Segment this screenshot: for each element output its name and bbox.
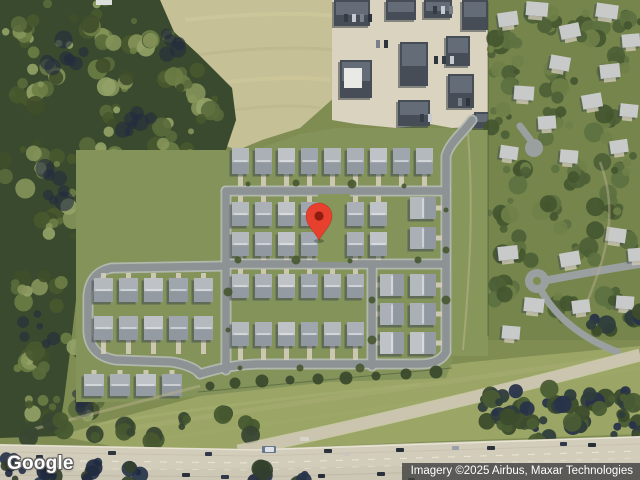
roof-slope: [94, 329, 113, 340]
overlay-tree: [86, 459, 103, 476]
forest-tree: [17, 78, 28, 89]
street-tree: [238, 366, 243, 371]
street-tree: [292, 256, 301, 265]
driveway-pad: [516, 99, 528, 104]
neighborhood-tree: [520, 167, 531, 178]
roof-slope: [301, 335, 318, 346]
forest-tree: [190, 63, 205, 78]
roof-slope: [119, 291, 138, 302]
roof-ridge: [96, 289, 112, 290]
roof-slope: [347, 215, 364, 226]
forest-tree: [25, 400, 33, 408]
forest-tree: [17, 284, 27, 294]
roof-ridge: [257, 213, 271, 214]
roof-slope: [94, 291, 113, 302]
forest-tree: [188, 128, 194, 134]
neighborhood-tree: [586, 221, 604, 239]
cul-de-sac-island: [533, 277, 541, 285]
forest-shadow: [43, 190, 54, 201]
parked-car: [428, 114, 432, 122]
building-roof: [464, 2, 486, 17]
roof-slope: [232, 162, 249, 174]
roof-ridge: [349, 243, 363, 244]
truck-trailer: [265, 447, 274, 452]
forest-shadow: [55, 31, 73, 49]
roof-ridge: [257, 243, 271, 244]
neighborhood-tree: [496, 102, 511, 117]
neighborhood-tree: [550, 212, 559, 221]
neighborhood-tree: [611, 167, 618, 174]
white-structure: [96, 0, 112, 5]
roof-slope: [232, 335, 249, 346]
roof-slope: [370, 245, 387, 256]
roof-slope: [347, 245, 364, 256]
forest-shadow: [161, 29, 172, 40]
roof-ridge: [121, 289, 137, 290]
roof-slope: [255, 287, 272, 298]
neighborhood-tree: [540, 195, 557, 212]
vehicle: [221, 475, 229, 479]
band-tree: [492, 409, 498, 415]
pin-hole: [314, 211, 323, 220]
forest-tree: [43, 227, 55, 239]
neighborhood-tree: [582, 9, 590, 17]
roof-ridge: [146, 289, 162, 290]
roof-ridge: [391, 334, 392, 353]
building-roof: [400, 102, 428, 115]
forest-tree: [143, 33, 158, 48]
parked-car: [433, 6, 437, 14]
roof-slope: [194, 329, 213, 340]
roof-ridge: [280, 285, 294, 286]
vehicle: [324, 449, 332, 453]
forest-shadow: [145, 112, 157, 124]
forest-shadow: [37, 323, 44, 330]
roof-ridge: [171, 327, 187, 328]
forest-tree: [26, 96, 45, 115]
roof-slope: [301, 287, 318, 298]
neighborhood-tree: [509, 176, 528, 195]
forest-tree: [104, 127, 114, 137]
roof-ridge: [86, 384, 103, 385]
roof-ridge: [96, 327, 112, 328]
roof-ridge: [349, 285, 363, 286]
roof-ridge: [303, 333, 317, 334]
street-tree: [443, 247, 450, 254]
roof-slope: [232, 287, 249, 298]
forest-tree: [157, 138, 169, 150]
roof-ridge: [422, 305, 423, 324]
neighborhood-tree: [622, 168, 630, 176]
forest-tree: [2, 28, 10, 36]
neighborhood-tree: [503, 166, 511, 174]
roof-ridge: [234, 213, 248, 214]
band-tree: [563, 413, 582, 432]
house-row: [376, 274, 404, 357]
neighborhood-tree: [624, 21, 633, 30]
house-roof: [616, 295, 635, 309]
roof-slope: [324, 335, 341, 346]
roof-slope: [347, 335, 364, 346]
roof-slope: [393, 303, 404, 325]
overlay-tree: [124, 461, 136, 473]
street-tree: [348, 259, 353, 264]
forest-tree: [55, 276, 68, 289]
parked-car: [352, 14, 356, 22]
neighborhood-tree: [556, 106, 567, 117]
roof-ridge: [280, 160, 294, 161]
building-roof: [336, 2, 368, 15]
roadside-tree: [182, 415, 191, 424]
roof-ridge: [164, 384, 181, 385]
hedge-tree: [230, 378, 241, 389]
roof-slope: [393, 162, 410, 174]
roof-slope: [144, 291, 163, 302]
vehicle: [588, 443, 596, 447]
forest-shadow: [79, 47, 89, 57]
forest-tree: [11, 16, 27, 32]
roof-ridge: [196, 289, 212, 290]
house-roof: [627, 247, 640, 262]
neighborhood-tree: [501, 206, 519, 224]
house-roof: [514, 85, 535, 100]
street-tree: [235, 257, 242, 264]
forest-tree: [27, 64, 38, 75]
house-roof: [538, 115, 557, 129]
forest-shadow: [159, 46, 174, 61]
neighborhood-tree: [514, 69, 520, 75]
forest-tree: [28, 46, 40, 58]
roof-slope: [278, 245, 295, 256]
roadside-tree: [52, 412, 68, 428]
vehicle: [343, 452, 350, 456]
attribution-bar: Imagery ©2025 Airbus, Maxar Technologies: [402, 463, 640, 480]
forest-shadow: [40, 55, 55, 70]
vehicle: [560, 442, 567, 446]
parked-car: [376, 40, 380, 48]
forest-tree: [54, 161, 60, 167]
vehicle: [487, 446, 495, 450]
roof-ridge: [326, 285, 340, 286]
neighborhood-tree: [537, 18, 552, 33]
vehicle: [396, 448, 404, 452]
house-roof: [523, 297, 544, 313]
roof-slope: [393, 274, 404, 296]
band-tree: [509, 384, 523, 398]
band-tree: [527, 418, 539, 430]
parked-car: [442, 56, 446, 64]
parked-car: [420, 114, 424, 122]
roof-ridge: [121, 327, 137, 328]
roof-slope: [255, 335, 272, 346]
roof-slope: [347, 162, 364, 174]
forest-tree: [70, 233, 77, 240]
forest-tree: [27, 14, 40, 27]
neighborhood-tree: [507, 198, 513, 204]
street-tree: [224, 288, 233, 297]
neighborhood-tree: [511, 55, 523, 67]
forest-tree: [164, 67, 183, 86]
street-tree: [444, 208, 449, 213]
neighborhood-tree: [553, 221, 567, 235]
forest-shadow: [19, 332, 29, 342]
subdivision: [76, 120, 488, 402]
house-roof: [525, 1, 548, 17]
forest-tree: [20, 146, 27, 153]
band-tree: [540, 380, 558, 398]
parked-car: [384, 40, 388, 48]
band-tree: [613, 423, 621, 431]
street-tree: [246, 182, 251, 187]
house-roof: [571, 299, 590, 314]
band-tree: [495, 398, 503, 406]
roof-ridge: [391, 305, 392, 324]
roof-slope: [424, 197, 436, 219]
forest-tree: [105, 35, 121, 51]
roof-ridge: [349, 333, 363, 334]
forest-tree: [15, 179, 35, 199]
roof-slope: [278, 335, 295, 346]
hedge-tree: [430, 366, 443, 379]
forest-tree: [38, 361, 50, 373]
roof-slope: [393, 332, 404, 354]
roof-ridge: [391, 276, 392, 295]
forest-shadow: [34, 310, 42, 318]
street-tree: [369, 297, 376, 304]
vehicle: [300, 437, 309, 441]
vehicle: [182, 473, 190, 477]
roof-slope: [232, 215, 249, 226]
roof-ridge: [326, 160, 340, 161]
neighborhood-tree: [551, 165, 560, 174]
band-tree: [583, 387, 597, 401]
roof-slope: [255, 162, 272, 174]
roadside-tree: [91, 432, 101, 442]
roof-slope: [424, 227, 436, 249]
forest-tree: [22, 357, 29, 364]
street-tree: [402, 184, 407, 189]
roof-ridge: [234, 285, 248, 286]
roof-ridge: [395, 160, 409, 161]
forest-tree: [130, 47, 137, 54]
roof-slope: [324, 162, 341, 174]
roof-slope: [84, 386, 104, 396]
band-tree: [629, 421, 637, 429]
google-logo[interactable]: Google: [7, 453, 74, 475]
roof-ridge: [234, 160, 248, 161]
roof-ridge: [303, 160, 317, 161]
roof-slope: [347, 287, 364, 298]
overlay-tree: [253, 460, 273, 480]
street-tree: [293, 180, 300, 187]
vehicle: [318, 474, 325, 478]
forest-tree: [184, 80, 193, 89]
band-tree: [586, 320, 596, 330]
roadside-tree: [179, 423, 186, 430]
roadside-tree: [19, 428, 38, 447]
cul-de-sac: [525, 139, 543, 157]
roof-slope: [370, 215, 387, 226]
roof-slope: [169, 329, 188, 340]
forest-tree: [14, 364, 22, 372]
hedge-tree: [372, 372, 381, 381]
house-roof: [501, 325, 520, 340]
street-tree: [356, 364, 365, 373]
parked-car: [449, 6, 453, 14]
roof-ridge: [280, 243, 294, 244]
forest-tree: [113, 106, 120, 113]
parked-car: [368, 14, 372, 22]
roof-ridge: [257, 285, 271, 286]
roof-ridge: [138, 384, 155, 385]
roof-ridge: [112, 384, 129, 385]
house-row: [230, 232, 388, 260]
forest-tree: [49, 299, 63, 313]
forest-tree: [196, 114, 206, 124]
neighborhood-tree: [570, 77, 578, 85]
house-roof: [609, 139, 629, 154]
roof-slope: [278, 162, 295, 174]
forest-tree: [38, 81, 44, 87]
building-roof: [402, 44, 426, 66]
forest-shadow: [64, 54, 76, 66]
street-tree: [348, 180, 357, 189]
house-row: [408, 274, 443, 357]
building-roof: [426, 2, 450, 11]
forest-tree: [81, 15, 100, 34]
roof-slope: [301, 162, 318, 174]
roof-ridge: [349, 160, 363, 161]
roof-slope: [370, 162, 387, 174]
white-roof-building: [344, 68, 362, 88]
satellite-map-canvas[interactable]: [0, 0, 640, 480]
neighborhood-tree: [629, 152, 637, 160]
roof-ridge: [326, 333, 340, 334]
roof-ridge: [280, 213, 294, 214]
house-roof: [559, 149, 578, 164]
forest-tree: [26, 146, 42, 162]
house-roof: [619, 103, 638, 118]
building-roof: [388, 2, 414, 12]
parked-car: [344, 14, 348, 22]
roof-ridge: [422, 199, 423, 218]
hedge-tree: [206, 382, 215, 391]
roof-slope: [194, 291, 213, 302]
roof-ridge: [303, 285, 317, 286]
roof-ridge: [422, 276, 423, 295]
parked-car: [434, 56, 438, 64]
forest-shadow: [172, 37, 185, 50]
roof-slope: [255, 245, 272, 256]
house-roof: [599, 63, 620, 79]
forest-tree: [96, 58, 111, 73]
forest-tree: [53, 396, 60, 403]
roof-ridge: [349, 213, 363, 214]
roof-slope: [232, 245, 249, 256]
neighborhood-tree: [586, 197, 605, 216]
forest-tree: [38, 270, 51, 283]
parked-car: [466, 98, 470, 106]
forest-shadow: [17, 316, 29, 328]
roadside-tree: [126, 428, 135, 437]
roof-ridge: [303, 243, 317, 244]
band-tree: [554, 396, 571, 413]
hedge-tree: [401, 369, 412, 380]
roadside-tree: [214, 405, 233, 424]
roof-ridge: [234, 243, 248, 244]
roof-ridge: [171, 289, 187, 290]
neighborhood-tree: [501, 130, 510, 139]
map-viewport: Google Imagery ©2025 Airbus, Maxar Techn…: [0, 0, 640, 480]
neighborhood-tree: [497, 286, 513, 302]
band-tree: [618, 411, 625, 418]
roof-ridge: [280, 333, 294, 334]
forest-shadow: [43, 169, 54, 180]
roof-slope: [424, 303, 436, 325]
attribution-text: Imagery ©2025 Airbus, Maxar Technologies: [411, 463, 633, 480]
forest-tree: [131, 18, 137, 24]
vehicle: [452, 446, 459, 450]
roof-ridge: [257, 333, 271, 334]
neighborhood-tree: [551, 92, 563, 104]
roof-ridge: [422, 229, 423, 248]
roof-slope: [278, 287, 295, 298]
roof-ridge: [418, 160, 432, 161]
band-tree: [592, 401, 607, 416]
building-roof: [476, 114, 488, 122]
house-roof: [497, 245, 518, 261]
roof-slope: [144, 329, 163, 340]
neighborhood-tree: [568, 171, 580, 183]
roof-slope: [424, 332, 436, 354]
parked-car: [450, 56, 454, 64]
band-tree: [539, 416, 547, 424]
street-tree: [368, 336, 377, 345]
building-roof: [448, 38, 468, 53]
parked-car: [458, 98, 462, 106]
roof-slope: [324, 287, 341, 298]
roof-ridge: [372, 160, 386, 161]
roof-ridge: [146, 327, 162, 328]
east-house: [625, 247, 640, 266]
roof-ridge: [196, 327, 212, 328]
roof-slope: [255, 215, 272, 226]
vehicle: [108, 451, 116, 455]
forest-tree: [97, 77, 116, 96]
forest-tree: [67, 154, 77, 164]
forest-tree: [69, 13, 79, 23]
hedge-tree: [313, 374, 324, 385]
roof-slope: [416, 162, 433, 174]
roof-ridge: [372, 213, 386, 214]
driveway-pad: [541, 129, 551, 134]
roof-slope: [119, 329, 138, 340]
roof-slope: [301, 245, 318, 256]
band-tree: [608, 395, 615, 402]
building-roof: [450, 76, 472, 93]
street-tree: [415, 257, 422, 264]
street-tree: [226, 328, 231, 333]
house-roof: [499, 145, 519, 160]
roof-ridge: [234, 333, 248, 334]
commercial-complex: [332, 0, 490, 130]
forest-tree: [38, 395, 49, 406]
vehicle: [205, 452, 212, 456]
roof-slope: [169, 291, 188, 302]
street-tree: [297, 365, 304, 372]
neighborhood-tree: [523, 253, 538, 268]
forest-shadow: [47, 332, 60, 345]
